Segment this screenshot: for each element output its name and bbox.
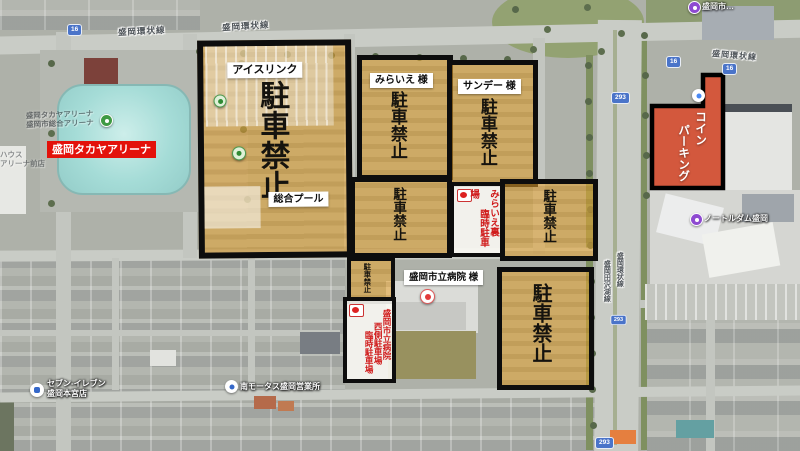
tree-row [48,60,55,67]
coin-parking-text: パーキング [677,124,689,182]
route-shield-293: 293 [595,437,614,449]
pool-building [204,186,260,228]
coin-parking-text: コイン [694,111,706,146]
roof [610,430,636,444]
temp-parking-line: 臨時駐車場 [364,331,374,374]
residential-block [0,0,200,30]
road-horizontal [0,330,340,336]
poi-label-seven-eleven: セブン-イレブン 盛岡本宮店 [47,379,106,400]
residential-block [645,300,800,451]
no-parking-text: 駐車禁止 [478,98,496,166]
building [724,104,792,198]
label-sunday: サンデー 様 [458,79,521,94]
roof [150,350,176,366]
poi-label-top-right: 盛岡市… [702,2,734,12]
temp-parking-line: みらいえ裏 [488,189,499,237]
mall-parking-lot [645,284,800,320]
basemap-shop-label: ハウス アリーナ前店 [0,150,45,169]
route-shield-16: 16 [666,56,681,68]
label-miraie: みらいえ 様 [370,73,433,88]
road-name-label: 盛岡環状線 [712,48,758,63]
tree-row [641,32,648,39]
road-name-label-vertical: 盛岡田沢湖線 [603,260,610,302]
venue-marker-icon [690,213,703,226]
no-parking-zone-icerink: アイスリンク 駐車禁止 総合プール [197,39,353,258]
road-name-label-vertical: 盛岡環状線 [616,252,623,287]
sports-field [388,331,476,379]
roof [278,401,294,411]
temp-parking-line: 盛岡市立病院 [382,309,392,360]
hospital-building-wing [396,302,466,330]
basemap-arena-label: 盛岡タカヤアリーナ 盛岡市総合アリーナ [26,109,94,130]
roof [676,420,714,438]
roof [300,332,340,354]
route-shield-293: 293 [611,92,630,104]
hospital-marker-icon [420,289,435,304]
business-marker-icon [225,380,238,393]
tree-row [585,62,592,69]
no-parking-text: 駐車禁止 [388,91,406,159]
route-shield-16: 16 [67,24,82,36]
poi-label-motors: 南モータス盛岡営業所 [240,382,320,392]
park-marker-icon [100,114,113,127]
temp-parking-text: 盛岡市立病院西側駐車場臨時駐車場 [348,303,391,378]
road-vertical [248,258,255,390]
roof [254,396,276,409]
tree-cluster [512,6,519,13]
annotated-aerial-map: 盛岡タカヤアリーナ 盛岡市総合アリーナ ハウス アリーナ前店 アイスリンク 駐車… [0,0,800,451]
no-parking-text: 駐車禁止 [541,189,555,243]
hospital-banner: 盛岡市立病院 様 [404,270,483,285]
label-pool: 総合プール [268,192,328,208]
route-shield-16: 16 [722,63,737,75]
temp-parking-text: みらいえ裏臨時駐車場 [456,189,498,251]
label-icerink: アイスリンク [227,62,302,79]
arena-banner: 盛岡タカヤアリーナ [47,141,156,158]
no-parking-text: 駐車禁止 [529,283,550,363]
transit-marker-icon [692,89,705,102]
no-parking-zone-miraie: みらいえ 様 駐車禁止 [357,55,453,180]
temp-parking-zone-hospital-west: 盛岡市立病院西側駐車場臨時駐車場 [343,297,396,383]
no-parking-zone-mid-left: 駐車禁止 [350,177,452,258]
residential-block [0,396,600,451]
no-parking-text: 駐車禁止 [255,80,288,200]
temp-parking-zone-miraie-rear: みらいえ裏臨時駐車場 [450,182,504,257]
no-parking-text: 駐車禁止 [391,187,405,241]
store-marker-icon [30,383,44,397]
no-parking-zone-south: 駐車禁止 [497,267,594,390]
road-vertical [112,258,119,390]
no-parking-text: 駐車禁止 [363,263,371,293]
route-shield-293: 293 [610,315,626,325]
park-marker-icon [232,146,246,160]
arena-annex-building [84,58,118,86]
tree-row [0,400,14,451]
poi-label-notredame: ノートルダム盛岡 [704,214,768,224]
park-marker-icon [214,94,227,107]
road-right-boulevard [594,20,642,451]
temp-parking-line: 西側駐車場 [373,322,383,365]
road-name-label: 盛岡環状線 [118,24,166,38]
no-parking-zone-sunday: サンデー 様 駐車禁止 [447,60,538,187]
no-parking-zone-mid-right: 駐車禁止 [500,179,598,261]
arena-building [57,84,191,195]
shopping-marker-icon [688,1,701,14]
temp-parking-line: 臨時駐車場 [468,189,489,247]
